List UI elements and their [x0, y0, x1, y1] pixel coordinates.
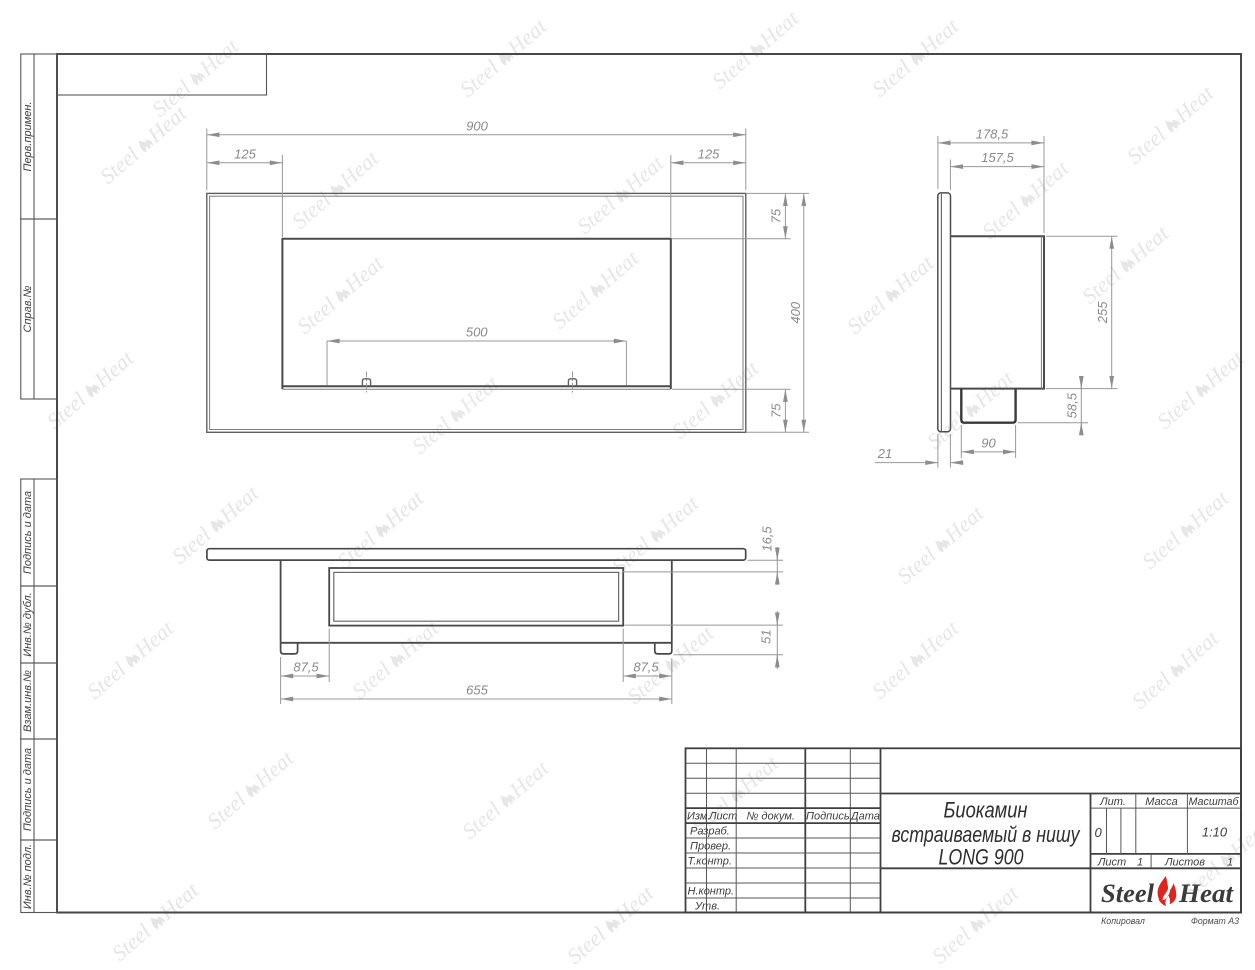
svg-text:Справ.№: Справ.№	[22, 285, 34, 332]
svg-text:87,5: 87,5	[633, 660, 659, 675]
svg-text:Heat: Heat	[1178, 879, 1234, 908]
svg-text:900: 900	[466, 119, 488, 134]
svg-text:75: 75	[769, 208, 784, 223]
svg-text:Утв.: Утв.	[694, 901, 720, 913]
svg-text:0: 0	[1095, 825, 1103, 840]
svg-text:Биокамин: Биокамин	[944, 798, 1028, 823]
svg-text:Лит.: Лит.	[1099, 796, 1126, 808]
svg-text:21: 21	[877, 446, 892, 461]
svg-text:Подпись и дата: Подпись и дата	[22, 491, 34, 574]
svg-text:1: 1	[1137, 857, 1143, 869]
svg-text:Дата: Дата	[849, 811, 880, 823]
svg-text:Steel: Steel	[1101, 879, 1155, 908]
svg-text:Лист: Лист	[708, 811, 737, 823]
svg-text:Копировал: Копировал	[1101, 916, 1145, 926]
svg-text:90: 90	[981, 435, 996, 450]
svg-text:500: 500	[466, 325, 488, 340]
svg-text:Масса: Масса	[1145, 796, 1178, 808]
svg-text:16,5: 16,5	[760, 526, 775, 552]
svg-text:1:10: 1:10	[1202, 825, 1228, 840]
svg-text:Инв.№ подл.: Инв.№ подл.	[22, 844, 34, 909]
svg-text:Инв.№ дубл.: Инв.№ дубл.	[22, 592, 34, 657]
svg-text:75: 75	[769, 403, 784, 418]
svg-text:Формат А3: Формат А3	[1191, 916, 1239, 926]
svg-text:Подпись и дата: Подпись и дата	[22, 748, 34, 831]
svg-text:Т.контр.: Т.контр.	[688, 856, 732, 868]
svg-text:255: 255	[1095, 301, 1110, 324]
svg-text:Перв.примен.: Перв.примен.	[22, 101, 34, 171]
svg-text:Взам.инв.№: Взам.инв.№	[22, 670, 34, 732]
svg-text:Подпись: Подпись	[806, 811, 850, 823]
svg-text:1: 1	[1227, 857, 1233, 869]
svg-text:Разраб.: Разраб.	[690, 826, 730, 838]
svg-text:№ докум.: № докум.	[746, 811, 794, 823]
svg-text:51: 51	[759, 629, 774, 643]
svg-text:Масштаб: Масштаб	[1189, 796, 1240, 808]
svg-text:400: 400	[788, 301, 803, 323]
svg-text:LONG 900: LONG 900	[939, 845, 1025, 870]
svg-text:178,5: 178,5	[976, 126, 1009, 141]
svg-text:58,5: 58,5	[1065, 392, 1080, 418]
svg-text:Изм.: Изм.	[687, 811, 710, 823]
svg-text:Листов: Листов	[1164, 857, 1205, 869]
svg-text:125: 125	[234, 146, 256, 161]
svg-text:157,5: 157,5	[981, 150, 1014, 165]
svg-text:Провер.: Провер.	[690, 841, 731, 853]
svg-text:655: 655	[466, 683, 488, 698]
svg-text:Лист: Лист	[1097, 857, 1126, 869]
svg-text:87,5: 87,5	[293, 660, 319, 675]
svg-text:125: 125	[698, 146, 720, 161]
svg-text:Н.контр.: Н.контр.	[688, 886, 735, 898]
svg-text:встраиваемый в нишу: встраиваемый в нишу	[892, 822, 1082, 847]
